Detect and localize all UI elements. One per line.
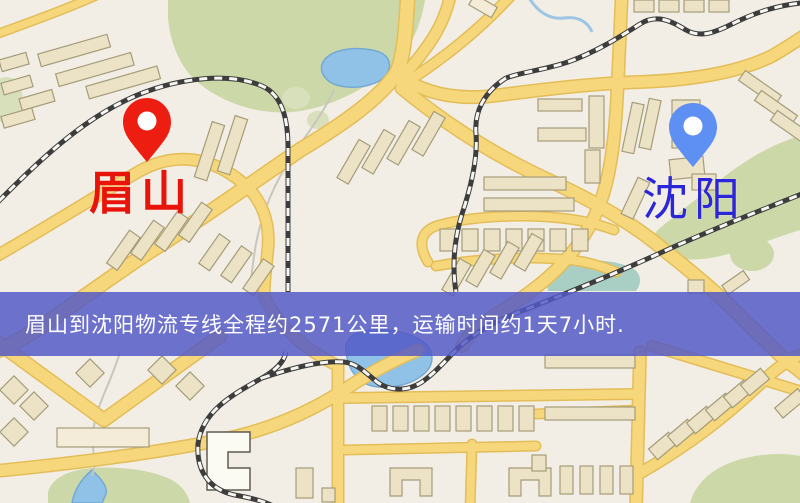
origin-marker[interactable] — [122, 97, 172, 167]
route-info-text: 眉山到沈阳物流专线全程约2571公里，运输时间约1天7小时. — [0, 309, 625, 339]
route-info-banner: 眉山到沈阳物流专线全程约2571公里，运输时间约1天7小时. — [0, 292, 800, 356]
destination-marker-label: 沈阳 — [642, 176, 746, 222]
park-bottom-left — [48, 468, 190, 503]
large-building — [207, 432, 250, 490]
park-bottom-right — [690, 454, 800, 503]
red-map-pin-icon — [122, 97, 172, 163]
blue-map-pin-icon — [668, 102, 718, 168]
pond — [322, 49, 390, 88]
destination-marker[interactable] — [668, 102, 718, 172]
logistics-route-map: 眉山 沈阳 眉山到沈阳物流专线全程约2571公里，运输时间约1天7小时. — [0, 0, 800, 503]
map-canvas — [0, 0, 800, 503]
origin-marker-label: 眉山 — [89, 170, 193, 216]
